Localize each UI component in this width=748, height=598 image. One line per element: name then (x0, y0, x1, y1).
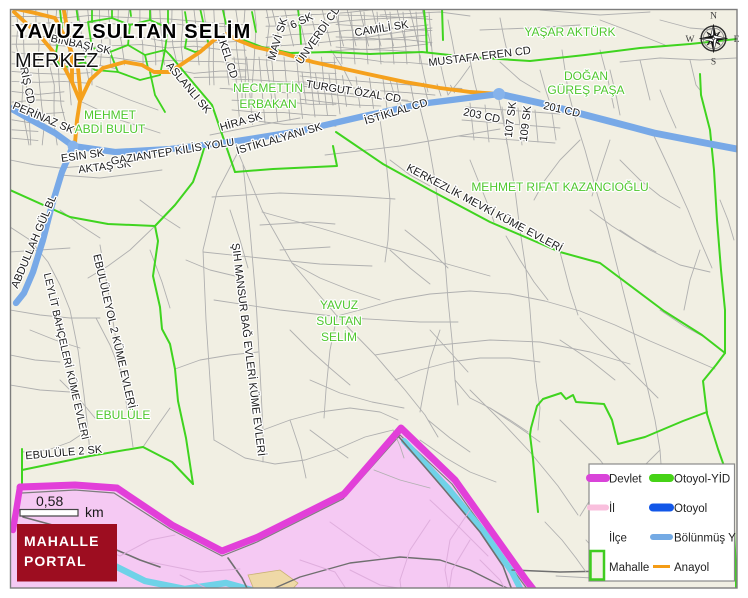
svg-text:DOĞAN: DOĞAN (564, 68, 608, 83)
svg-text:Otoyol-YİD: Otoyol-YİD (674, 473, 730, 486)
svg-text:SULTAN: SULTAN (316, 314, 362, 328)
svg-text:Devlet: Devlet (609, 474, 642, 486)
svg-text:W: W (686, 35, 695, 45)
svg-text:0,58: 0,58 (36, 493, 63, 509)
svg-text:NECMETTİN: NECMETTİN (233, 81, 303, 95)
svg-text:ABDİ BULUT: ABDİ BULUT (75, 122, 146, 136)
svg-text:N: N (710, 12, 717, 22)
svg-text:İlçe: İlçe (609, 532, 627, 545)
svg-text:ERBAKAN: ERBAKAN (239, 97, 296, 111)
svg-text:Mahalle: Mahalle (609, 562, 649, 574)
svg-text:Anayol: Anayol (674, 562, 709, 574)
svg-text:YAŞAR AKTÜRK: YAŞAR AKTÜRK (524, 25, 615, 39)
svg-text:YAVUZ: YAVUZ (320, 298, 358, 312)
svg-text:EBULÜLE: EBULÜLE (96, 408, 151, 422)
svg-text:PORTAL: PORTAL (24, 553, 87, 569)
svg-text:GÜREŞ PAŞA: GÜREŞ PAŞA (547, 83, 624, 97)
svg-text:MAHALLE: MAHALLE (24, 533, 99, 549)
svg-text:S: S (711, 58, 716, 68)
svg-text:MEHMET RIFAT KAZANCIOĞLU: MEHMET RIFAT KAZANCIOĞLU (471, 179, 648, 194)
svg-text:Bölünmüş Y: Bölünmüş Y (674, 533, 736, 545)
svg-text:Otoyol: Otoyol (674, 503, 707, 515)
svg-text:YAVUZ SULTAN SELİM: YAVUZ SULTAN SELİM (15, 20, 251, 43)
svg-text:İl: İl (609, 502, 615, 515)
svg-text:km: km (85, 504, 104, 520)
svg-text:SELİM: SELİM (321, 330, 357, 344)
svg-text:MERKEZ: MERKEZ (15, 50, 98, 72)
svg-text:MEHMET: MEHMET (84, 108, 137, 122)
